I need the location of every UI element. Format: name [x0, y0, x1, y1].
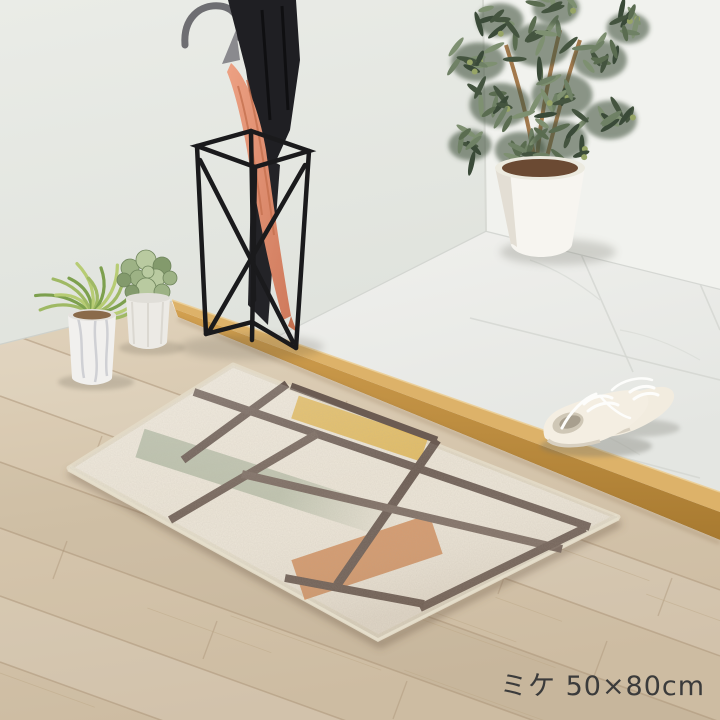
succulent-leaf — [117, 273, 131, 287]
olive-leaf — [537, 57, 542, 82]
olive-fruit — [581, 154, 587, 160]
succulent-pot-rim — [126, 293, 170, 303]
succulent-leaf — [142, 266, 154, 278]
olive-fruit — [570, 8, 576, 14]
olive-fruit — [630, 115, 636, 121]
olive-fruit — [467, 59, 473, 65]
olive-fruit — [547, 100, 553, 106]
marble-pot — [68, 315, 116, 385]
olive-pot-soil — [502, 159, 578, 177]
olive-fruit — [472, 69, 478, 75]
succulent-leaf — [163, 271, 177, 285]
caption: ミケ 50×80cm — [500, 671, 705, 702]
product-photo-rug-entryway: ミケ 50×80cm — [0, 0, 720, 720]
olive-fruit — [498, 31, 504, 37]
marble-pot-soil — [73, 311, 111, 320]
scene-canvas: ミケ 50×80cm — [0, 0, 720, 720]
